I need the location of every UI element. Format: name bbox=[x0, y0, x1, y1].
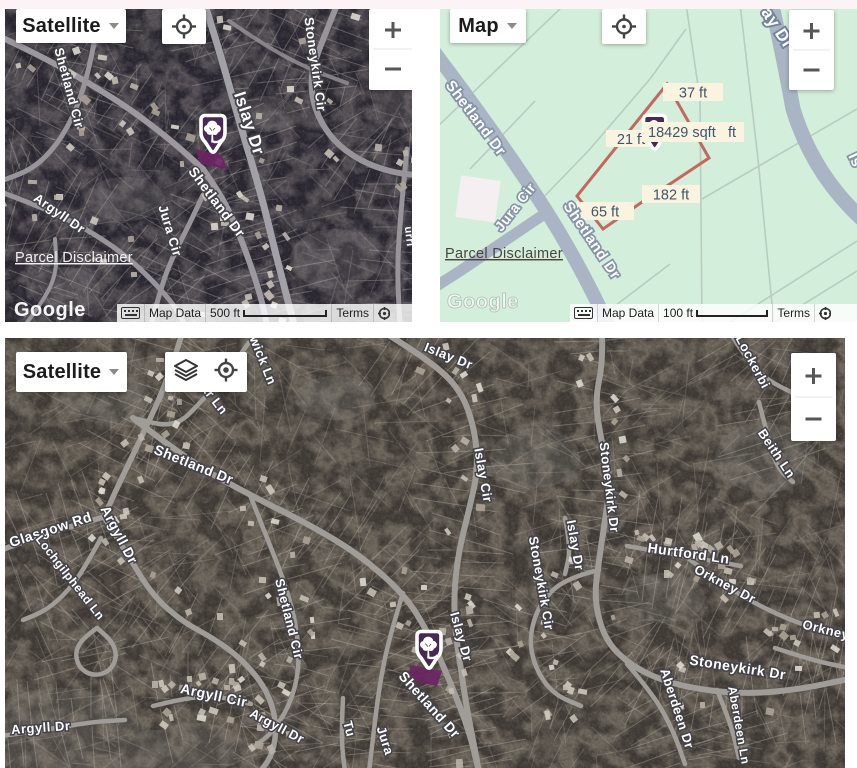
svg-text:ft: ft bbox=[728, 125, 736, 141]
svg-text:37 ft: 37 ft bbox=[679, 86, 707, 102]
svg-text:182 ft: 182 ft bbox=[653, 188, 689, 204]
svg-text:Google: Google bbox=[14, 299, 86, 321]
svg-text:21 ft: 21 ft bbox=[617, 132, 645, 148]
svg-text:Parcel Disclaimer: Parcel Disclaimer bbox=[15, 250, 133, 266]
svg-text:18429 sqft: 18429 sqft bbox=[648, 125, 716, 141]
svg-text:65 ft: 65 ft bbox=[591, 205, 619, 221]
svg-text:Parcel Disclaimer: Parcel Disclaimer bbox=[445, 246, 563, 262]
svg-text:Google: Google bbox=[447, 291, 519, 313]
